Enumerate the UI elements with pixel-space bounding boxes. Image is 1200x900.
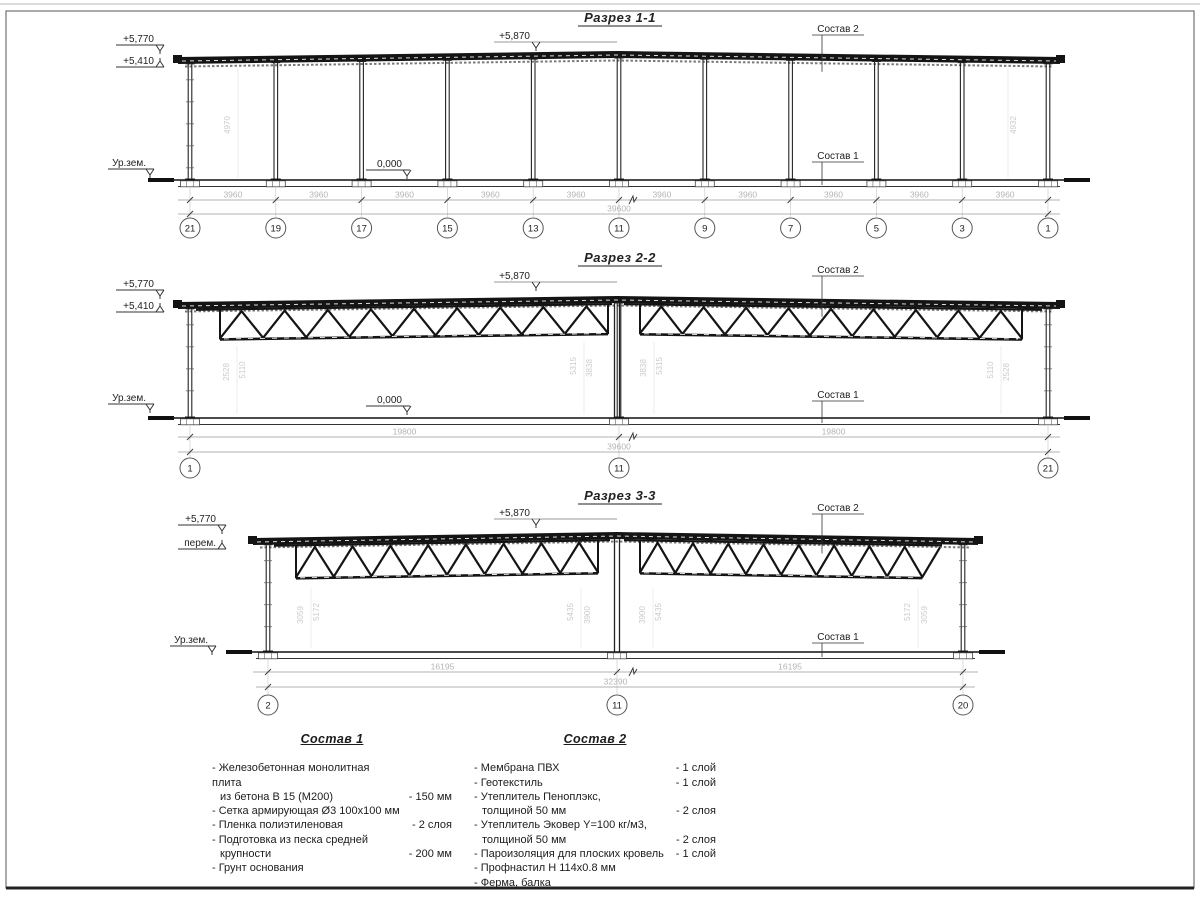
elevation-arrow-icon xyxy=(156,45,164,51)
grid-bubble-label: 2 xyxy=(265,701,270,712)
height-dim-label: 5172 xyxy=(312,603,321,621)
roof-slab xyxy=(253,532,978,545)
dim-label: 19800 xyxy=(393,427,417,437)
grid-bubble-label: 11 xyxy=(614,224,624,235)
ground-level-label: Ур.зем. xyxy=(112,158,146,169)
truss-web xyxy=(640,543,940,577)
truss-web xyxy=(640,307,1022,339)
height-dim-label: 5110 xyxy=(986,361,995,379)
composition-block-1: Состав 1- Железобетонная монолитная плит… xyxy=(212,731,452,876)
grid-bubble-label: 5 xyxy=(874,224,879,235)
composition-item-line: - Утеплитель Эковер Y=100 кг/м3, xyxy=(474,818,666,832)
composition-item-text: - Ферма, балка xyxy=(474,876,716,890)
truss-web xyxy=(296,543,598,578)
dim-label: 3960 xyxy=(395,190,414,200)
composition-item: - Утеплитель Эковер Y=100 кг/м3,толщиной… xyxy=(474,818,716,847)
ground-level-label: Ур.зем. xyxy=(174,635,208,646)
composition-item-value: - 2 слоя xyxy=(676,833,716,847)
composition-item-text: - Сетка армирующая Ø3 100х100 мм xyxy=(212,804,452,818)
height-dim-label: 5110 xyxy=(238,361,247,379)
dim-label: 39600 xyxy=(607,204,631,214)
composition-item-value: - 1 слой xyxy=(676,761,716,775)
composition-item-text: - Пленка полиэтиленовая xyxy=(212,818,402,832)
roof-end-cap xyxy=(248,536,257,544)
footing xyxy=(954,653,973,659)
footing xyxy=(781,181,800,187)
ground-level-label: Ур.зем. xyxy=(112,393,146,404)
composition-item: - Пленка полиэтиленовая- 2 слоя xyxy=(212,818,452,832)
composition-item: - Подготовка из песка среднейкрупности- … xyxy=(212,833,452,862)
footing xyxy=(181,419,200,425)
composition-item-text: - Утеплитель Эковер Y=100 кг/м3,толщиной… xyxy=(474,818,666,847)
footing xyxy=(524,181,543,187)
height-dim-label: 3059 xyxy=(296,606,305,624)
composition-item: - Ферма, балка xyxy=(474,876,716,890)
leader-sostav-1: Состав 1 xyxy=(817,632,859,643)
dim-label: 3960 xyxy=(910,190,929,200)
roof-slab xyxy=(178,51,1060,64)
composition-item-line: крупности xyxy=(212,847,399,861)
height-dim-label: 4932 xyxy=(1009,116,1018,134)
grid-bubble-label: 17 xyxy=(356,224,367,235)
composition-item-text: - Утеплитель Пеноплэкс,толщиной 50 мм xyxy=(474,790,666,819)
composition-item-line: - Грунт основания xyxy=(212,861,452,875)
composition-item-line: толщиной 50 мм xyxy=(474,804,666,818)
elevation-label: +5,770 xyxy=(185,514,216,525)
footing xyxy=(610,419,629,425)
composition-item-line: - Геотекстиль xyxy=(474,776,666,790)
ridge-elevation-label: +5,870 xyxy=(499,508,530,519)
dim-label: 3960 xyxy=(824,190,843,200)
composition-item-value: - 200 мм xyxy=(409,847,452,861)
footing xyxy=(352,181,371,187)
composition-item-line: - Сетка армирующая Ø3 100х100 мм xyxy=(212,804,452,818)
composition-item-line: - Подготовка из песка средней xyxy=(212,833,399,847)
elevation-arrow-icon xyxy=(156,306,164,312)
grid-bubble-label: 11 xyxy=(614,464,624,475)
dim-label: 16195 xyxy=(431,662,455,672)
grid-bubble-label: 13 xyxy=(528,224,539,235)
grid-bubble-label: 1 xyxy=(187,464,192,475)
ridge-elevation-label: +5,870 xyxy=(499,31,530,42)
composition-item-text: - Геотекстиль xyxy=(474,776,666,790)
composition-item-text: - Мембрана ПВХ xyxy=(474,761,666,775)
composition-item-text: - Подготовка из песка среднейкрупности xyxy=(212,833,399,862)
leader-sostav-1: Состав 1 xyxy=(817,390,859,401)
composition-block-2: Состав 2- Мембрана ПВХ- 1 слой- Геотекст… xyxy=(474,731,716,890)
composition-item: - Мембрана ПВХ- 1 слой xyxy=(474,761,716,775)
composition-item-line: - Железобетонная монолитная плита xyxy=(212,761,399,790)
elevation-label: перем. xyxy=(184,538,216,549)
composition-item-value: - 1 слой xyxy=(676,776,716,790)
dim-label: 3960 xyxy=(567,190,586,200)
dim-label: 3960 xyxy=(223,190,242,200)
leader-sostav-2: Состав 2 xyxy=(817,265,859,276)
composition-item-line: - Ферма, балка xyxy=(474,876,716,890)
footing xyxy=(266,181,285,187)
dim-label: 39600 xyxy=(607,442,631,452)
elevation-arrow-icon xyxy=(532,42,540,48)
leader-sostav-2: Состав 2 xyxy=(817,24,859,35)
footing xyxy=(1039,419,1058,425)
footing xyxy=(1039,181,1058,187)
grid-bubble-label: 20 xyxy=(958,701,969,712)
dim-label: 3960 xyxy=(652,190,671,200)
height-dim-label: 3059 xyxy=(920,606,929,624)
composition-item-value: - 150 мм xyxy=(409,790,452,804)
elevation-arrow-icon xyxy=(218,543,226,549)
composition-item-line: - Профнастил Н 114х0.8 мм xyxy=(474,861,716,875)
drawing-sheet: Разрез 1-1+5,770+5,410Ур.зем.0,000+5,870… xyxy=(0,0,1200,900)
elevation-label: +5,410 xyxy=(123,56,154,67)
section-title: Разрез 1-1 xyxy=(584,10,656,25)
section-title: Разрез 3-3 xyxy=(584,488,656,503)
zero-level-label: 0,000 xyxy=(377,395,402,406)
grid-bubble-label: 21 xyxy=(1043,464,1054,475)
ridge-elevation-label: +5,870 xyxy=(499,271,530,282)
footing xyxy=(259,653,278,659)
composition-item-line: - Утеплитель Пеноплэкс, xyxy=(474,790,666,804)
grid-bubble-label: 21 xyxy=(185,224,196,235)
height-dim-label: 3900 xyxy=(583,606,592,624)
composition-item: - Сетка армирующая Ø3 100х100 мм xyxy=(212,804,452,818)
grid-bubble-label: 1 xyxy=(1045,224,1050,235)
elevation-arrow-icon xyxy=(218,525,226,531)
elevation-arrow-icon xyxy=(146,169,154,175)
dim-label: 16195 xyxy=(778,662,802,672)
height-dim-label: 3900 xyxy=(638,606,647,624)
height-dim-label: 2528 xyxy=(1002,363,1011,381)
footing xyxy=(953,181,972,187)
truss-bottom-chord xyxy=(640,334,1022,339)
grid-bubble-label: 19 xyxy=(271,224,282,235)
dim-label: 32390 xyxy=(604,677,628,687)
elevation-arrow-icon xyxy=(532,519,540,525)
composition-item-text: - Железобетонная монолитная плитаиз бето… xyxy=(212,761,399,804)
grid-bubble-label: 7 xyxy=(788,224,793,235)
leader-sostav-1: Состав 1 xyxy=(817,151,859,162)
height-dim-label: 5172 xyxy=(903,603,912,621)
height-dim-label: 4970 xyxy=(223,116,232,134)
composition-item-value: - 2 слоя xyxy=(412,818,452,832)
elevation-arrow-icon xyxy=(156,290,164,296)
composition-item-line: - Пленка полиэтиленовая xyxy=(212,818,402,832)
composition-item-value: - 1 слой xyxy=(676,847,716,861)
composition-title: Состав 1 xyxy=(212,731,452,747)
height-dim-label: 5435 xyxy=(654,603,663,621)
elevation-arrow-icon xyxy=(532,282,540,288)
dim-label: 3960 xyxy=(481,190,500,200)
composition-item-text: - Пароизоляция для плоских кровель xyxy=(474,847,666,861)
elevation-label: +5,770 xyxy=(123,279,154,290)
composition-item-line: толщиной 50 мм xyxy=(474,833,666,847)
height-dim-label: 5315 xyxy=(655,357,664,375)
zero-level-label: 0,000 xyxy=(377,159,402,170)
composition-item-line: из бетона В 15 (М200) xyxy=(212,790,399,804)
grid-bubble-label: 11 xyxy=(612,701,622,712)
dim-label: 3960 xyxy=(309,190,328,200)
footing xyxy=(181,181,200,187)
composition-item-text: - Профнастил Н 114х0.8 мм xyxy=(474,861,716,875)
height-dim-label: 3838 xyxy=(585,359,594,377)
grid-bubble-label: 9 xyxy=(702,224,707,235)
elevation-label: +5,770 xyxy=(123,34,154,45)
grid-bubble-label: 3 xyxy=(960,224,965,235)
elevation-arrow-icon xyxy=(403,406,411,412)
height-dim-label: 5435 xyxy=(566,603,575,621)
dim-label: 3960 xyxy=(738,190,757,200)
footing xyxy=(610,181,629,187)
section-title: Разрез 2-2 xyxy=(584,250,656,265)
dim-label: 3960 xyxy=(996,190,1015,200)
composition-title: Состав 2 xyxy=(474,731,716,747)
elevation-arrow-icon xyxy=(146,404,154,410)
composition-item: - Профнастил Н 114х0.8 мм xyxy=(474,861,716,875)
composition-item-line: - Пароизоляция для плоских кровель xyxy=(474,847,666,861)
roof-end-cap xyxy=(974,536,983,544)
height-dim-label: 5315 xyxy=(569,357,578,375)
composition-item: - Геотекстиль- 1 слой xyxy=(474,776,716,790)
truss-bottom-chord xyxy=(220,334,608,339)
grid-bubble-label: 15 xyxy=(442,224,453,235)
roof-end-cap xyxy=(173,55,182,63)
height-dim-label: 2528 xyxy=(222,363,231,381)
height-dim-label: 3838 xyxy=(639,359,648,377)
dim-label: 19800 xyxy=(822,427,846,437)
elevation-arrow-icon xyxy=(156,61,164,67)
composition-item-value: - 2 слоя xyxy=(676,804,716,818)
roof-end-cap xyxy=(1056,55,1065,63)
composition-item: - Железобетонная монолитная плитаиз бето… xyxy=(212,761,452,804)
leader-sostav-2: Состав 2 xyxy=(817,503,859,514)
composition-item: - Пароизоляция для плоских кровель- 1 сл… xyxy=(474,847,716,861)
composition-item-text: - Грунт основания xyxy=(212,861,452,875)
roof-end-cap xyxy=(173,300,182,308)
composition-item-line: - Мембрана ПВХ xyxy=(474,761,666,775)
composition-item: - Утеплитель Пеноплэкс,толщиной 50 мм- 2… xyxy=(474,790,716,819)
footing xyxy=(867,181,886,187)
elevation-label: +5,410 xyxy=(123,301,154,312)
footing xyxy=(608,653,627,659)
elevation-arrow-icon xyxy=(208,646,216,652)
roof-end-cap xyxy=(1056,300,1065,308)
composition-item: - Грунт основания xyxy=(212,861,452,875)
footing xyxy=(438,181,457,187)
elevation-arrow-icon xyxy=(403,170,411,176)
footing xyxy=(695,181,714,187)
